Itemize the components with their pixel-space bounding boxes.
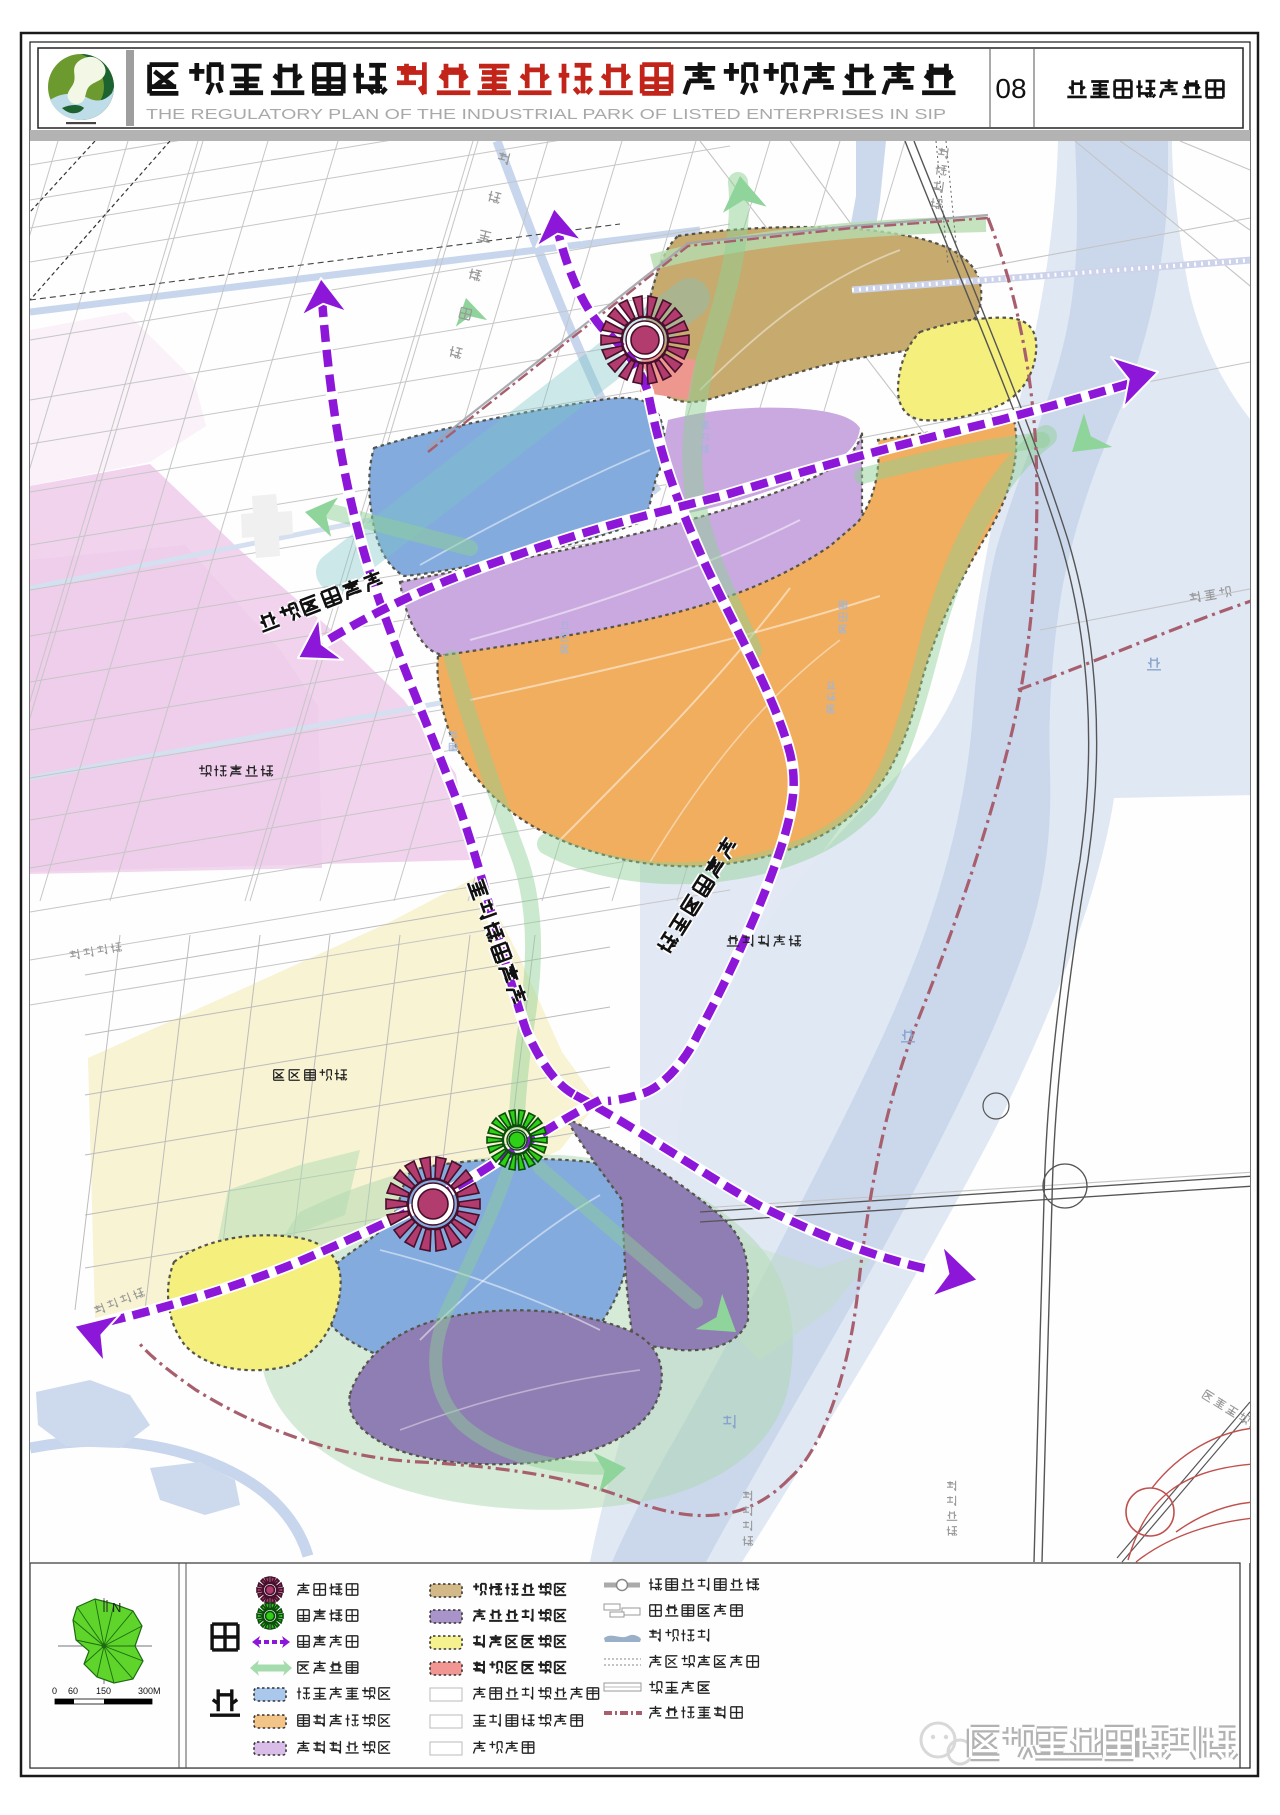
svg-text:THE REGULATORY PLAN OF THE IND: THE REGULATORY PLAN OF THE INDUSTRIAL PA… bbox=[146, 107, 946, 123]
svg-text:N: N bbox=[112, 1600, 121, 1615]
svg-text:300M: 300M bbox=[138, 1686, 161, 1696]
svg-text:0: 0 bbox=[52, 1686, 57, 1696]
svg-text:150: 150 bbox=[96, 1686, 111, 1696]
svg-text:08: 08 bbox=[995, 73, 1026, 104]
svg-text:60: 60 bbox=[68, 1686, 78, 1696]
